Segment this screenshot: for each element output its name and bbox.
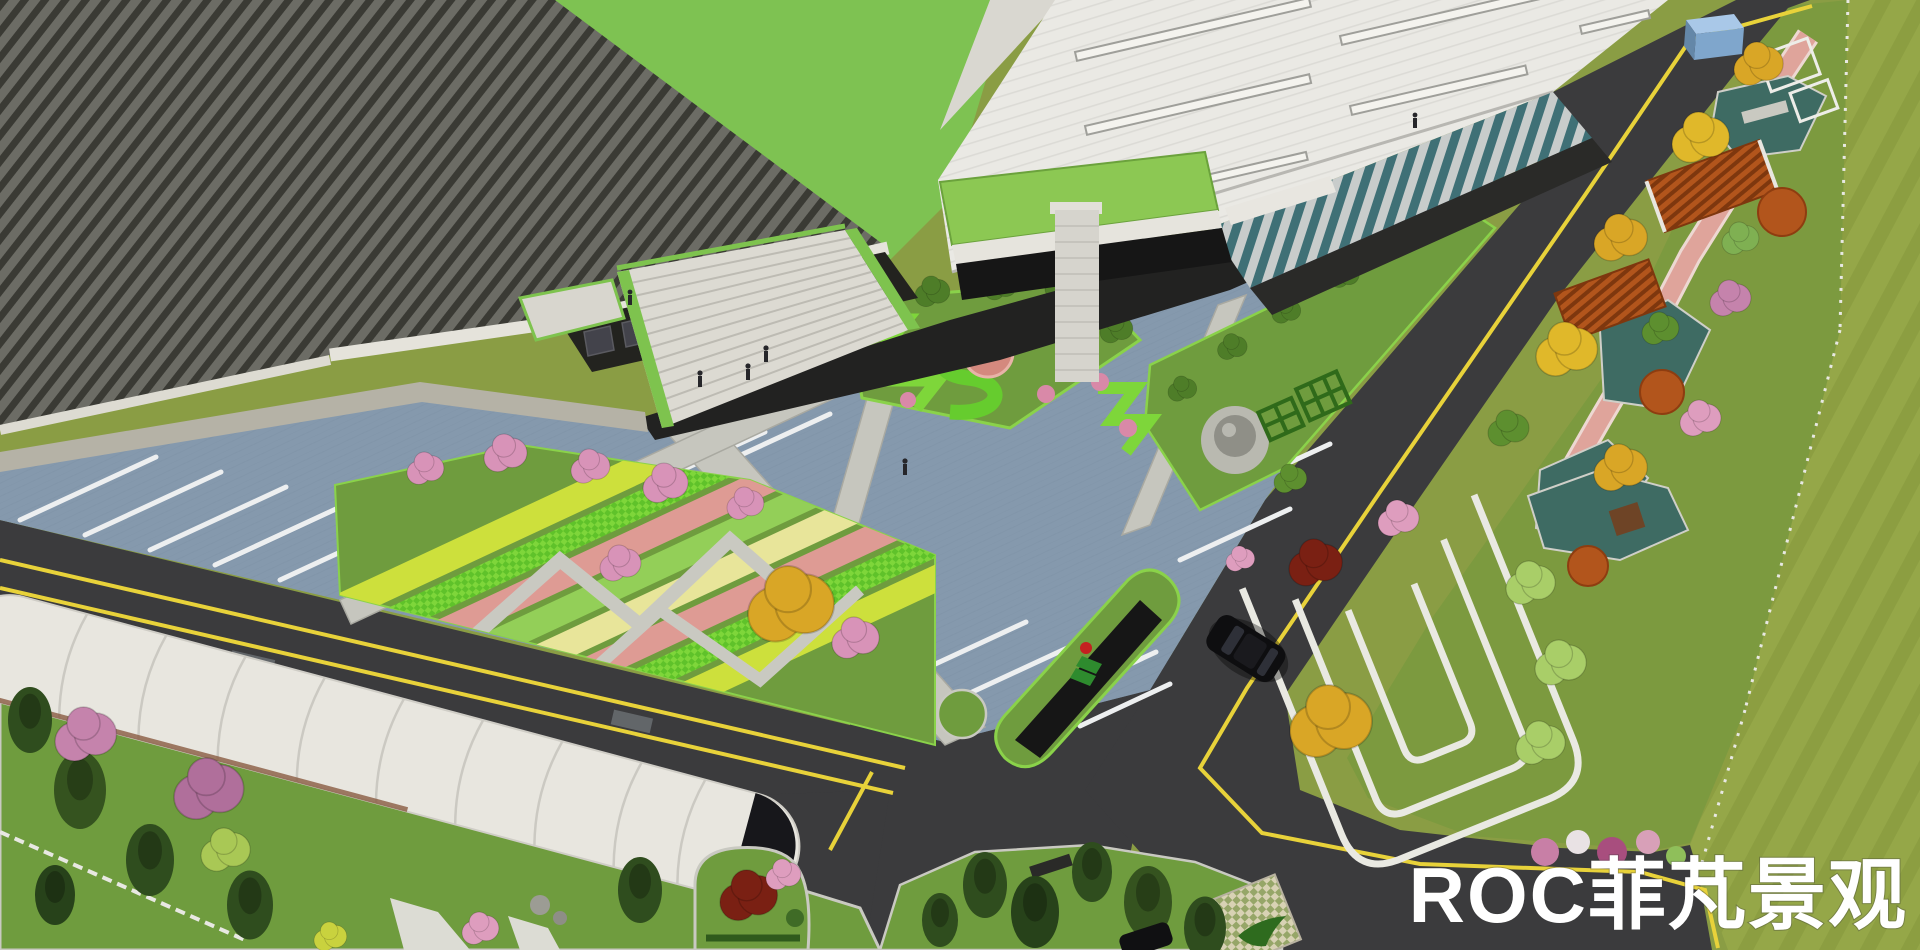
landscape-render: ROC菲芃景观	[0, 0, 1920, 950]
red-marker	[1080, 642, 1092, 654]
rock	[530, 895, 550, 915]
round-island	[938, 690, 986, 738]
entrance-tower	[1055, 210, 1099, 382]
person	[902, 458, 907, 475]
person	[763, 345, 768, 362]
person	[628, 290, 633, 305]
person	[745, 363, 750, 380]
stone-sphere	[1214, 415, 1256, 457]
watermark-text: ROC菲芃景观	[1409, 851, 1908, 939]
rooftop-blue-unit	[1684, 14, 1744, 60]
person	[697, 370, 702, 387]
rock-2	[553, 911, 567, 925]
person	[1413, 113, 1418, 128]
